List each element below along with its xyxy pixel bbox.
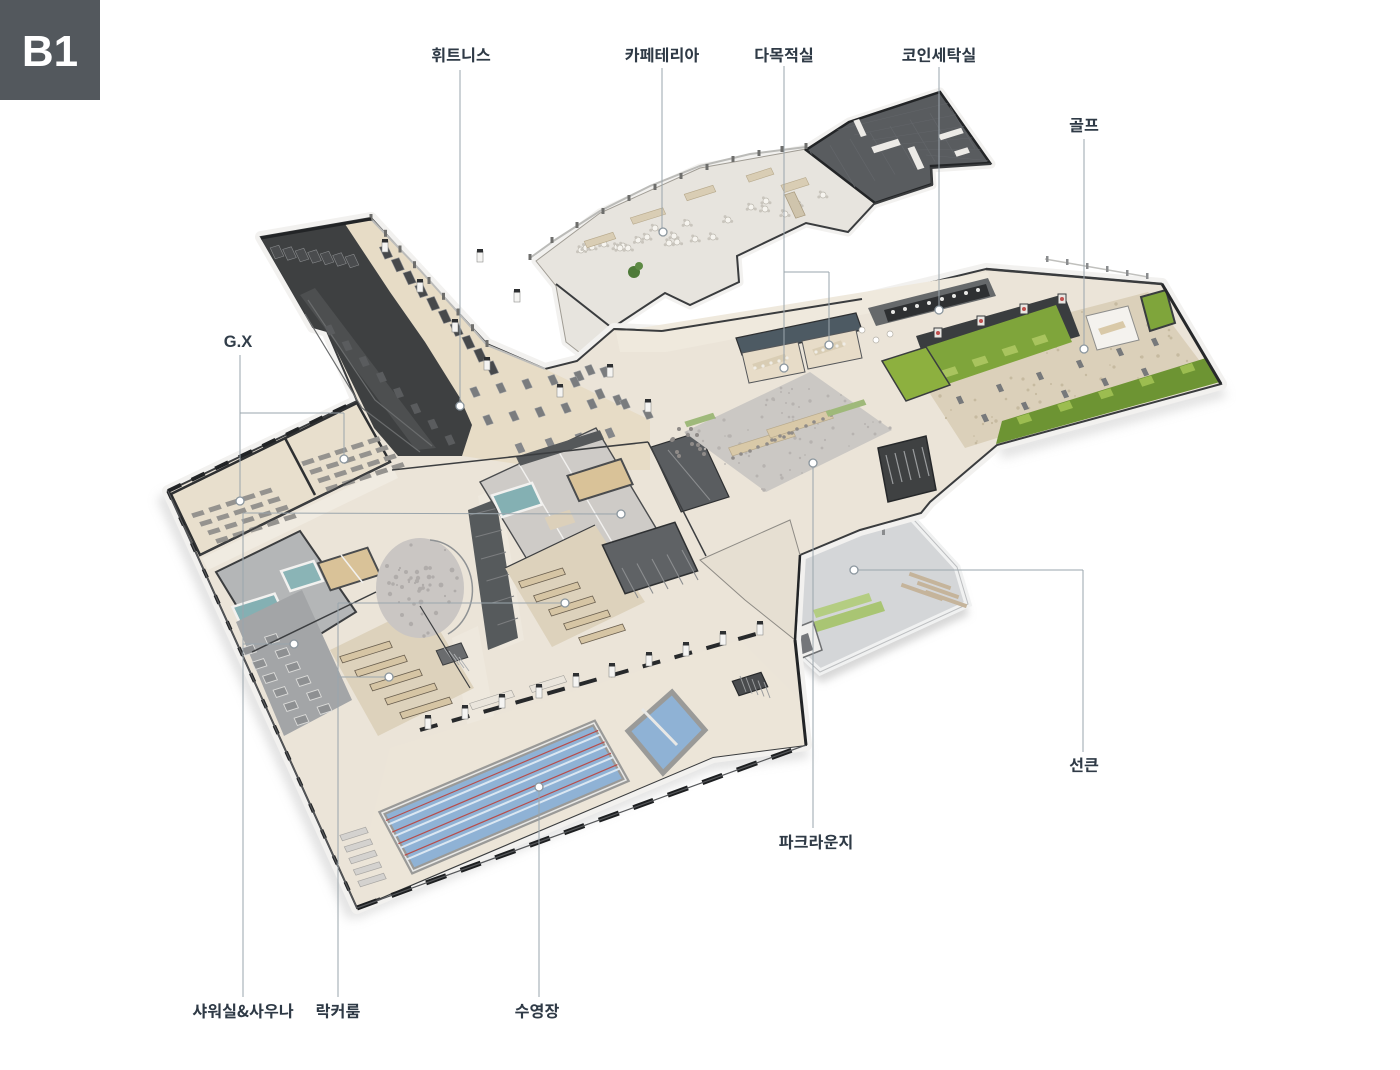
svg-text:B1: B1 xyxy=(22,27,78,76)
svg-text:G.X: G.X xyxy=(224,333,252,351)
